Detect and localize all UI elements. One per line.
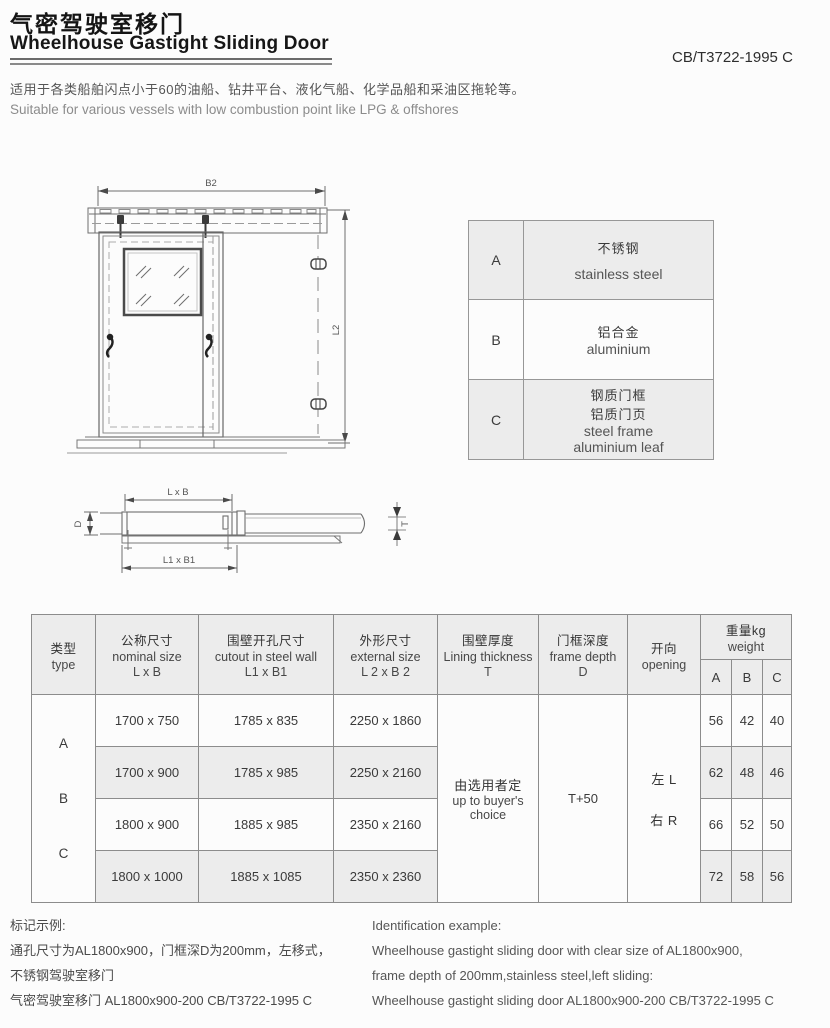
col-header-external-size: 外形尺寸 external size L 2 x B 2	[334, 615, 438, 695]
col-header-opening: 开向 opening	[628, 615, 701, 695]
wall-clip	[311, 259, 326, 269]
dim-label-d: D	[73, 520, 84, 527]
footer-line: Wheelhouse gastight sliding door with cl…	[372, 938, 824, 963]
material-key: A	[469, 221, 524, 300]
wall-clip	[311, 399, 326, 409]
opening-cell: 左 L 右 R	[628, 695, 701, 903]
door-handle	[107, 335, 112, 357]
identification-example-cn: 标记示例: 通孔尺寸为AL1800x900，门框深D为200mm，左移式， 不锈…	[10, 913, 368, 1013]
rail-roller-ticks	[100, 210, 316, 214]
nominal-size-value: 1700 x 900	[96, 747, 199, 799]
external-size-value: 2250 x 2160	[334, 747, 438, 799]
lining-thickness-cell: 由选用者定 up to buyer's choice	[438, 695, 539, 903]
col-header-weight-b: B	[732, 660, 763, 695]
description-en: Suitable for various vessels with low co…	[10, 102, 458, 117]
material-name-en: steel frame	[525, 423, 712, 439]
weight-c-value: 40	[763, 695, 792, 747]
col-header-frame-depth: 门框深度 frame depth D	[539, 615, 628, 695]
material-name-cn: 铝合金	[525, 322, 712, 341]
identification-example-en: Identification example: Wheelhouse gasti…	[372, 913, 824, 1013]
cutout-value: 1785 x 985	[199, 747, 334, 799]
material-table: A 不锈钢 stainless steel B 铝合金 aluminium C …	[468, 220, 714, 460]
weight-b-value: 52	[732, 799, 763, 851]
col-header-lining-thickness: 围壁厚度 Lining thickness T	[438, 615, 539, 695]
table-row: A B C 1700 x 750 1785 x 835 2250 x 1860 …	[32, 695, 792, 747]
hanger-bolt	[117, 215, 124, 238]
bottom-sill	[67, 437, 345, 453]
footer-line: Wheelhouse gastight sliding door AL1800x…	[372, 988, 824, 1013]
external-size-value: 2350 x 2160	[334, 799, 438, 851]
col-header-nominal-size: 公称尺寸 nominal size L x B	[96, 615, 199, 695]
weight-b-value: 42	[732, 695, 763, 747]
cutout-value: 1785 x 835	[199, 695, 334, 747]
material-row: A 不锈钢 stainless steel	[469, 221, 714, 300]
weight-c-value: 56	[763, 851, 792, 903]
material-row: B 铝合金 aluminium	[469, 300, 714, 380]
dim-label-b2: B2	[205, 178, 217, 189]
nominal-size-value: 1800 x 1000	[96, 851, 199, 903]
material-name-en: stainless steel	[525, 266, 712, 282]
type-letter: C	[32, 846, 95, 861]
weight-b-value: 58	[732, 851, 763, 903]
page-title-en: Wheelhouse Gastight Sliding Door	[10, 33, 329, 55]
footer-line: 不锈钢驾驶室移门	[10, 963, 368, 988]
slide-arm	[245, 514, 365, 533]
weight-a-value: 66	[701, 799, 732, 851]
spec-table: 类型 type 公称尺寸 nominal size L x B 围壁开孔尺寸 c…	[31, 614, 792, 903]
material-name-en: aluminium leaf	[525, 439, 712, 455]
standard-code: CB/T3722-1995 C	[672, 49, 793, 66]
material-key: C	[469, 380, 524, 460]
material-name-cn: 铝质门页	[525, 404, 712, 423]
footer-line: Identification example:	[372, 913, 824, 938]
weight-a-value: 56	[701, 695, 732, 747]
footer-line: frame depth of 200mm,stainless steel,lef…	[372, 963, 824, 988]
material-key: B	[469, 300, 524, 380]
col-header-type: 类型 type	[32, 615, 96, 695]
external-size-value: 2350 x 2360	[334, 851, 438, 903]
type-column: A B C	[32, 695, 96, 903]
col-header-weight-c: C	[763, 660, 792, 695]
dim-label-lxb: L x B	[167, 487, 188, 498]
description-cn: 适用于各类船舶闪点小于60的油船、钻井平台、液化气船、化学品船和采油区拖轮等。	[10, 79, 525, 98]
top-view-drawing: L x B D	[52, 478, 432, 596]
front-view-drawing: B2	[52, 172, 432, 474]
material-name-cn: 钢质门框	[525, 385, 712, 404]
col-header-cutout: 围壁开孔尺寸 cutout in steel wall L1 x B1	[199, 615, 334, 695]
door-handle	[206, 335, 211, 357]
col-header-weight-a: A	[701, 660, 732, 695]
nominal-size-value: 1800 x 900	[96, 799, 199, 851]
external-size-value: 2250 x 1860	[334, 695, 438, 747]
cutout-value: 1885 x 1085	[199, 851, 334, 903]
material-row: C 钢质门框 铝质门页 steel frame aluminium leaf	[469, 380, 714, 460]
weight-a-value: 62	[701, 747, 732, 799]
type-letter: A	[32, 736, 95, 751]
col-header-weight: 重量kg weight	[701, 615, 792, 660]
weight-c-value: 46	[763, 747, 792, 799]
type-letter: B	[32, 791, 95, 806]
dim-label-t: T	[400, 521, 411, 527]
catalog-page: 气密驾驶室移门 Wheelhouse Gastight Sliding Door…	[0, 0, 830, 1028]
dim-label-l1xb1: L1 x B1	[163, 555, 195, 566]
dim-b2	[98, 186, 325, 206]
door-window	[124, 249, 201, 315]
weight-c-value: 50	[763, 799, 792, 851]
weight-b-value: 48	[732, 747, 763, 799]
frame-depth-cell: T+50	[539, 695, 628, 903]
material-name-cn: 不锈钢	[525, 238, 712, 257]
nominal-size-value: 1700 x 750	[96, 695, 199, 747]
footer-line: 标记示例:	[10, 913, 368, 938]
dim-label-l2: L2	[331, 325, 342, 336]
cutout-value: 1885 x 985	[199, 799, 334, 851]
weight-a-value: 72	[701, 851, 732, 903]
footer-line: 气密驾驶室移门 AL1800x900-200 CB/T3722-1995 C	[10, 988, 368, 1013]
title-underline	[10, 58, 332, 65]
footer-line: 通孔尺寸为AL1800x900，门框深D为200mm，左移式，	[10, 938, 368, 963]
material-name-en: aluminium	[525, 341, 712, 357]
door-section	[100, 511, 245, 535]
